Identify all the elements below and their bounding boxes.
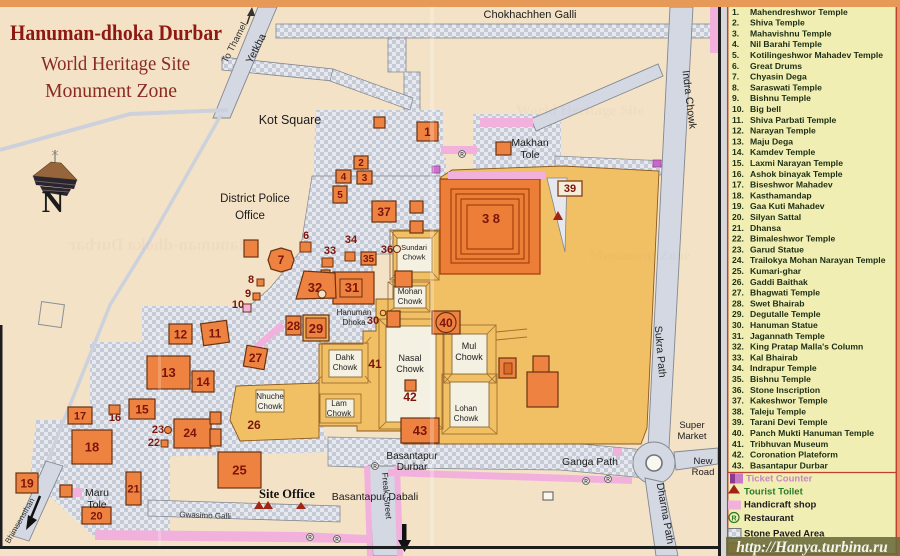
svg-text:17: 17 [74, 410, 86, 422]
svg-text:Kumari-ghar: Kumari-ghar [750, 266, 802, 276]
svg-text:Saraswati Temple: Saraswati Temple [750, 82, 822, 92]
svg-text:Coronation Plateform: Coronation Plateform [750, 450, 838, 460]
svg-text:33: 33 [324, 245, 336, 257]
svg-text:27.: 27. [732, 288, 744, 298]
svg-text:Mohan: Mohan [398, 287, 422, 296]
svg-text:Gaa Kuti Mahadev: Gaa Kuti Mahadev [750, 201, 825, 211]
svg-text:39.: 39. [732, 417, 744, 427]
svg-text:Degutalle Temple: Degutalle Temple [750, 309, 821, 319]
svg-text:Kot Square: Kot Square [259, 113, 322, 127]
svg-text:Laxmi Narayan Temple: Laxmi Narayan Temple [750, 158, 843, 168]
svg-text:34: 34 [345, 234, 358, 246]
svg-text:Ticket Counter: Ticket Counter [746, 474, 813, 485]
svg-text:N: N [42, 184, 64, 219]
svg-text:7: 7 [278, 253, 285, 267]
svg-text:29.: 29. [732, 309, 744, 319]
svg-text:Monument Zone: Monument Zone [45, 80, 177, 102]
svg-text:35: 35 [363, 254, 375, 265]
svg-text:Kakeshwor Temple: Kakeshwor Temple [750, 396, 828, 406]
svg-text:Jagannath Temple: Jagannath Temple [750, 331, 825, 341]
svg-text:R: R [731, 516, 736, 523]
svg-text:12: 12 [174, 327, 188, 341]
svg-text:Ashok binayak Temple: Ashok binayak Temple [750, 169, 843, 179]
svg-text:R: R [606, 477, 610, 483]
svg-text:11: 11 [209, 326, 222, 340]
svg-text:Chowk: Chowk [258, 402, 283, 411]
svg-text:28: 28 [287, 319, 301, 333]
svg-text:Basantapur Dabali: Basantapur Dabali [332, 491, 418, 503]
svg-text:Kotilingeshwor Mahadev Temple: Kotilingeshwor Mahadev Temple [750, 50, 883, 60]
svg-text:Shiva Parbati Temple: Shiva Parbati Temple [750, 115, 837, 125]
svg-text:Trailokya Mohan Narayan Temple: Trailokya Mohan Narayan Temple [750, 255, 886, 265]
svg-text:New: New [693, 456, 712, 467]
svg-text:2.: 2. [732, 18, 739, 28]
svg-text:Taleju Temple: Taleju Temple [750, 406, 806, 416]
svg-text:16.: 16. [732, 169, 744, 179]
svg-text:Chyasin Dega: Chyasin Dega [750, 72, 807, 82]
svg-text:Silyan Sattal: Silyan Sattal [750, 212, 801, 222]
svg-text:42.: 42. [732, 450, 744, 460]
svg-text:Chowk: Chowk [455, 352, 483, 362]
svg-text:13: 13 [161, 365, 175, 380]
svg-text:Lam: Lam [331, 399, 347, 408]
svg-text:Site Office: Site Office [259, 487, 315, 501]
svg-text:15: 15 [135, 402, 149, 416]
svg-text:18.: 18. [732, 190, 744, 200]
svg-text:Indrapur Temple: Indrapur Temple [750, 363, 817, 373]
svg-text:41.: 41. [732, 439, 744, 449]
svg-text:Tourist Toilet: Tourist Toilet [744, 487, 804, 498]
svg-text:5.: 5. [732, 50, 739, 60]
svg-text:Narayan Temple: Narayan Temple [750, 126, 816, 136]
svg-text:R: R [460, 152, 464, 158]
svg-text:Dahk: Dahk [336, 353, 356, 362]
svg-text:Handicraft shop: Handicraft shop [744, 500, 817, 511]
svg-text:Hanuman Statue: Hanuman Statue [750, 320, 818, 330]
svg-text:Maru: Maru [85, 487, 109, 499]
svg-text:World Heritage Site: World Heritage Site [516, 103, 645, 119]
svg-text:Basantapur Durbar: Basantapur Durbar [750, 460, 828, 470]
svg-text:Chokhachhen Galli: Chokhachhen Galli [484, 9, 577, 21]
svg-text:Chowk: Chowk [454, 414, 479, 423]
svg-text:Mul: Mul [462, 341, 477, 351]
svg-text:4.: 4. [732, 39, 739, 49]
svg-text:7.: 7. [732, 72, 739, 82]
svg-text:Swet Bhairab: Swet Bhairab [750, 298, 804, 308]
svg-text:Kal Bhairab: Kal Bhairab [750, 352, 798, 362]
svg-text:36: 36 [381, 244, 393, 256]
svg-text:28.: 28. [732, 298, 744, 308]
svg-text:Makhan: Makhan [511, 137, 549, 149]
svg-text:Sundari: Sundari [401, 243, 427, 252]
svg-text:Office: Office [235, 210, 265, 222]
svg-text:http://Hanya.turbina.ru: http://Hanya.turbina.ru [736, 539, 888, 556]
svg-text:19.: 19. [732, 201, 744, 211]
svg-text:Ganga Path: Ganga Path [562, 456, 618, 468]
svg-text:43.: 43. [732, 460, 744, 470]
svg-text:World Heritage Site: World Heritage Site [41, 53, 190, 75]
svg-text:Market: Market [677, 431, 706, 442]
svg-text:Bimaleshwor Temple: Bimaleshwor Temple [750, 234, 836, 244]
svg-text:Bishnu Temple: Bishnu Temple [750, 374, 811, 384]
svg-text:33.: 33. [732, 352, 744, 362]
svg-text:3 8: 3 8 [482, 211, 500, 226]
svg-text:21.: 21. [732, 223, 744, 233]
svg-text:Great Drums: Great Drums [750, 61, 802, 71]
svg-text:Restaurant: Restaurant [744, 513, 794, 524]
svg-text:12.: 12. [732, 126, 744, 136]
svg-text:31.: 31. [732, 331, 744, 341]
svg-text:24: 24 [183, 426, 197, 440]
svg-text:5: 5 [337, 190, 343, 201]
svg-text:1.: 1. [732, 7, 739, 17]
svg-text:25: 25 [232, 463, 246, 478]
svg-text:Super: Super [679, 420, 704, 431]
svg-text:Big bell: Big bell [750, 104, 781, 114]
svg-text:Chowk: Chowk [403, 253, 426, 262]
svg-text:Chowk: Chowk [333, 363, 358, 372]
svg-text:King Pratap Malla's Column: King Pratap Malla's Column [750, 342, 863, 352]
svg-text:Dhansa: Dhansa [750, 223, 781, 233]
svg-text:Dhoka: Dhoka [342, 318, 366, 327]
svg-text:34.: 34. [732, 363, 744, 373]
svg-text:17.: 17. [732, 180, 744, 190]
svg-text:Shiva Temple: Shiva Temple [750, 18, 805, 28]
svg-text:8.: 8. [732, 82, 739, 92]
svg-text:Chowk: Chowk [327, 409, 352, 418]
svg-text:3: 3 [362, 173, 368, 184]
svg-text:Tarani Devi Temple: Tarani Devi Temple [750, 417, 828, 427]
svg-text:R: R [584, 479, 588, 485]
svg-text:9: 9 [245, 288, 251, 300]
svg-text:Chowk: Chowk [398, 297, 423, 306]
svg-text:11.: 11. [732, 115, 743, 125]
svg-text:25.: 25. [732, 266, 744, 276]
svg-text:37: 37 [377, 205, 391, 219]
svg-text:Chowk: Chowk [396, 364, 424, 374]
svg-text:Kamdev Temple: Kamdev Temple [750, 147, 815, 157]
svg-text:31: 31 [345, 280, 359, 295]
svg-text:27: 27 [249, 351, 263, 365]
svg-text:Mahavishnu Temple: Mahavishnu Temple [750, 28, 832, 38]
svg-text:R: R [373, 464, 377, 470]
svg-text:Panch Mukti Hanuman Temple: Panch Mukti Hanuman Temple [750, 428, 874, 438]
svg-text:Monument Zone: Monument Zone [590, 249, 690, 264]
svg-text:40.: 40. [732, 428, 744, 438]
svg-text:9.: 9. [732, 93, 739, 103]
svg-text:14.: 14. [732, 147, 744, 157]
svg-text:24.: 24. [732, 255, 744, 265]
svg-text:Maju Dega: Maju Dega [750, 136, 793, 146]
svg-text:14: 14 [196, 375, 210, 389]
svg-text:29: 29 [309, 321, 323, 336]
svg-text:43: 43 [413, 423, 427, 438]
svg-text:Mahendreshwor Temple: Mahendreshwor Temple [750, 7, 848, 17]
svg-text:20: 20 [90, 510, 102, 522]
svg-text:Gaddi Baithak: Gaddi Baithak [750, 277, 808, 287]
svg-text:Lohan: Lohan [455, 404, 477, 413]
svg-text:Bishnu Temple: Bishnu Temple [750, 93, 811, 103]
svg-text:23.: 23. [732, 244, 744, 254]
svg-text:Nil Barahi Temple: Nil Barahi Temple [750, 39, 822, 49]
svg-text:Gwasimo Galli: Gwasimo Galli [179, 510, 231, 521]
svg-text:38.: 38. [732, 406, 744, 416]
svg-text:22.: 22. [732, 234, 744, 244]
svg-text:40: 40 [439, 316, 453, 330]
svg-text:6.: 6. [732, 61, 739, 71]
svg-text:37.: 37. [732, 396, 744, 406]
svg-text:Road: Road [692, 467, 715, 478]
svg-text:21: 21 [127, 483, 139, 495]
svg-text:Nasal: Nasal [398, 353, 421, 363]
svg-text:35.: 35. [732, 374, 744, 384]
svg-text:39: 39 [564, 183, 576, 195]
svg-text:Hanuman-dhoka Durbar: Hanuman-dhoka Durbar [68, 235, 251, 254]
svg-text:District Police: District Police [220, 193, 290, 205]
svg-text:10: 10 [232, 299, 244, 311]
svg-text:26: 26 [247, 418, 261, 432]
svg-text:2: 2 [358, 158, 364, 169]
svg-text:6: 6 [303, 230, 309, 242]
svg-text:Garud Statue: Garud Statue [750, 244, 804, 254]
svg-text:3.: 3. [732, 28, 739, 38]
svg-text:Hanuman: Hanuman [337, 308, 372, 317]
svg-text:32.: 32. [732, 342, 744, 352]
svg-text:Stone Inscription: Stone Inscription [750, 385, 820, 395]
svg-text:Kasthamandap: Kasthamandap [750, 190, 812, 200]
svg-text:Tole: Tole [520, 149, 539, 161]
svg-text:R: R [308, 535, 312, 541]
svg-text:Durbar: Durbar [397, 462, 428, 473]
svg-text:Hanuman-dhoka Durbar: Hanuman-dhoka Durbar [10, 20, 222, 45]
svg-text:10.: 10. [732, 104, 744, 114]
svg-text:41: 41 [368, 357, 382, 371]
svg-text:4: 4 [341, 172, 347, 183]
svg-text:Nhuche: Nhuche [256, 392, 284, 401]
svg-text:19: 19 [20, 476, 34, 490]
svg-text:18: 18 [85, 440, 99, 455]
svg-text:Tole: Tole [87, 499, 106, 511]
svg-text:Bhagwati Temple: Bhagwati Temple [750, 288, 820, 298]
svg-text:Tribhuvan Museum: Tribhuvan Museum [750, 439, 829, 449]
svg-text:36.: 36. [732, 385, 744, 395]
svg-text:13.: 13. [732, 136, 744, 146]
svg-text:26.: 26. [732, 277, 744, 287]
svg-text:Biseshwor Mahadev: Biseshwor Mahadev [750, 180, 833, 190]
svg-text:30.: 30. [732, 320, 744, 330]
svg-text:42: 42 [403, 390, 417, 404]
svg-text:20.: 20. [732, 212, 744, 222]
svg-text:R: R [335, 537, 339, 543]
svg-text:8: 8 [248, 274, 254, 286]
svg-text:15.: 15. [732, 158, 744, 168]
